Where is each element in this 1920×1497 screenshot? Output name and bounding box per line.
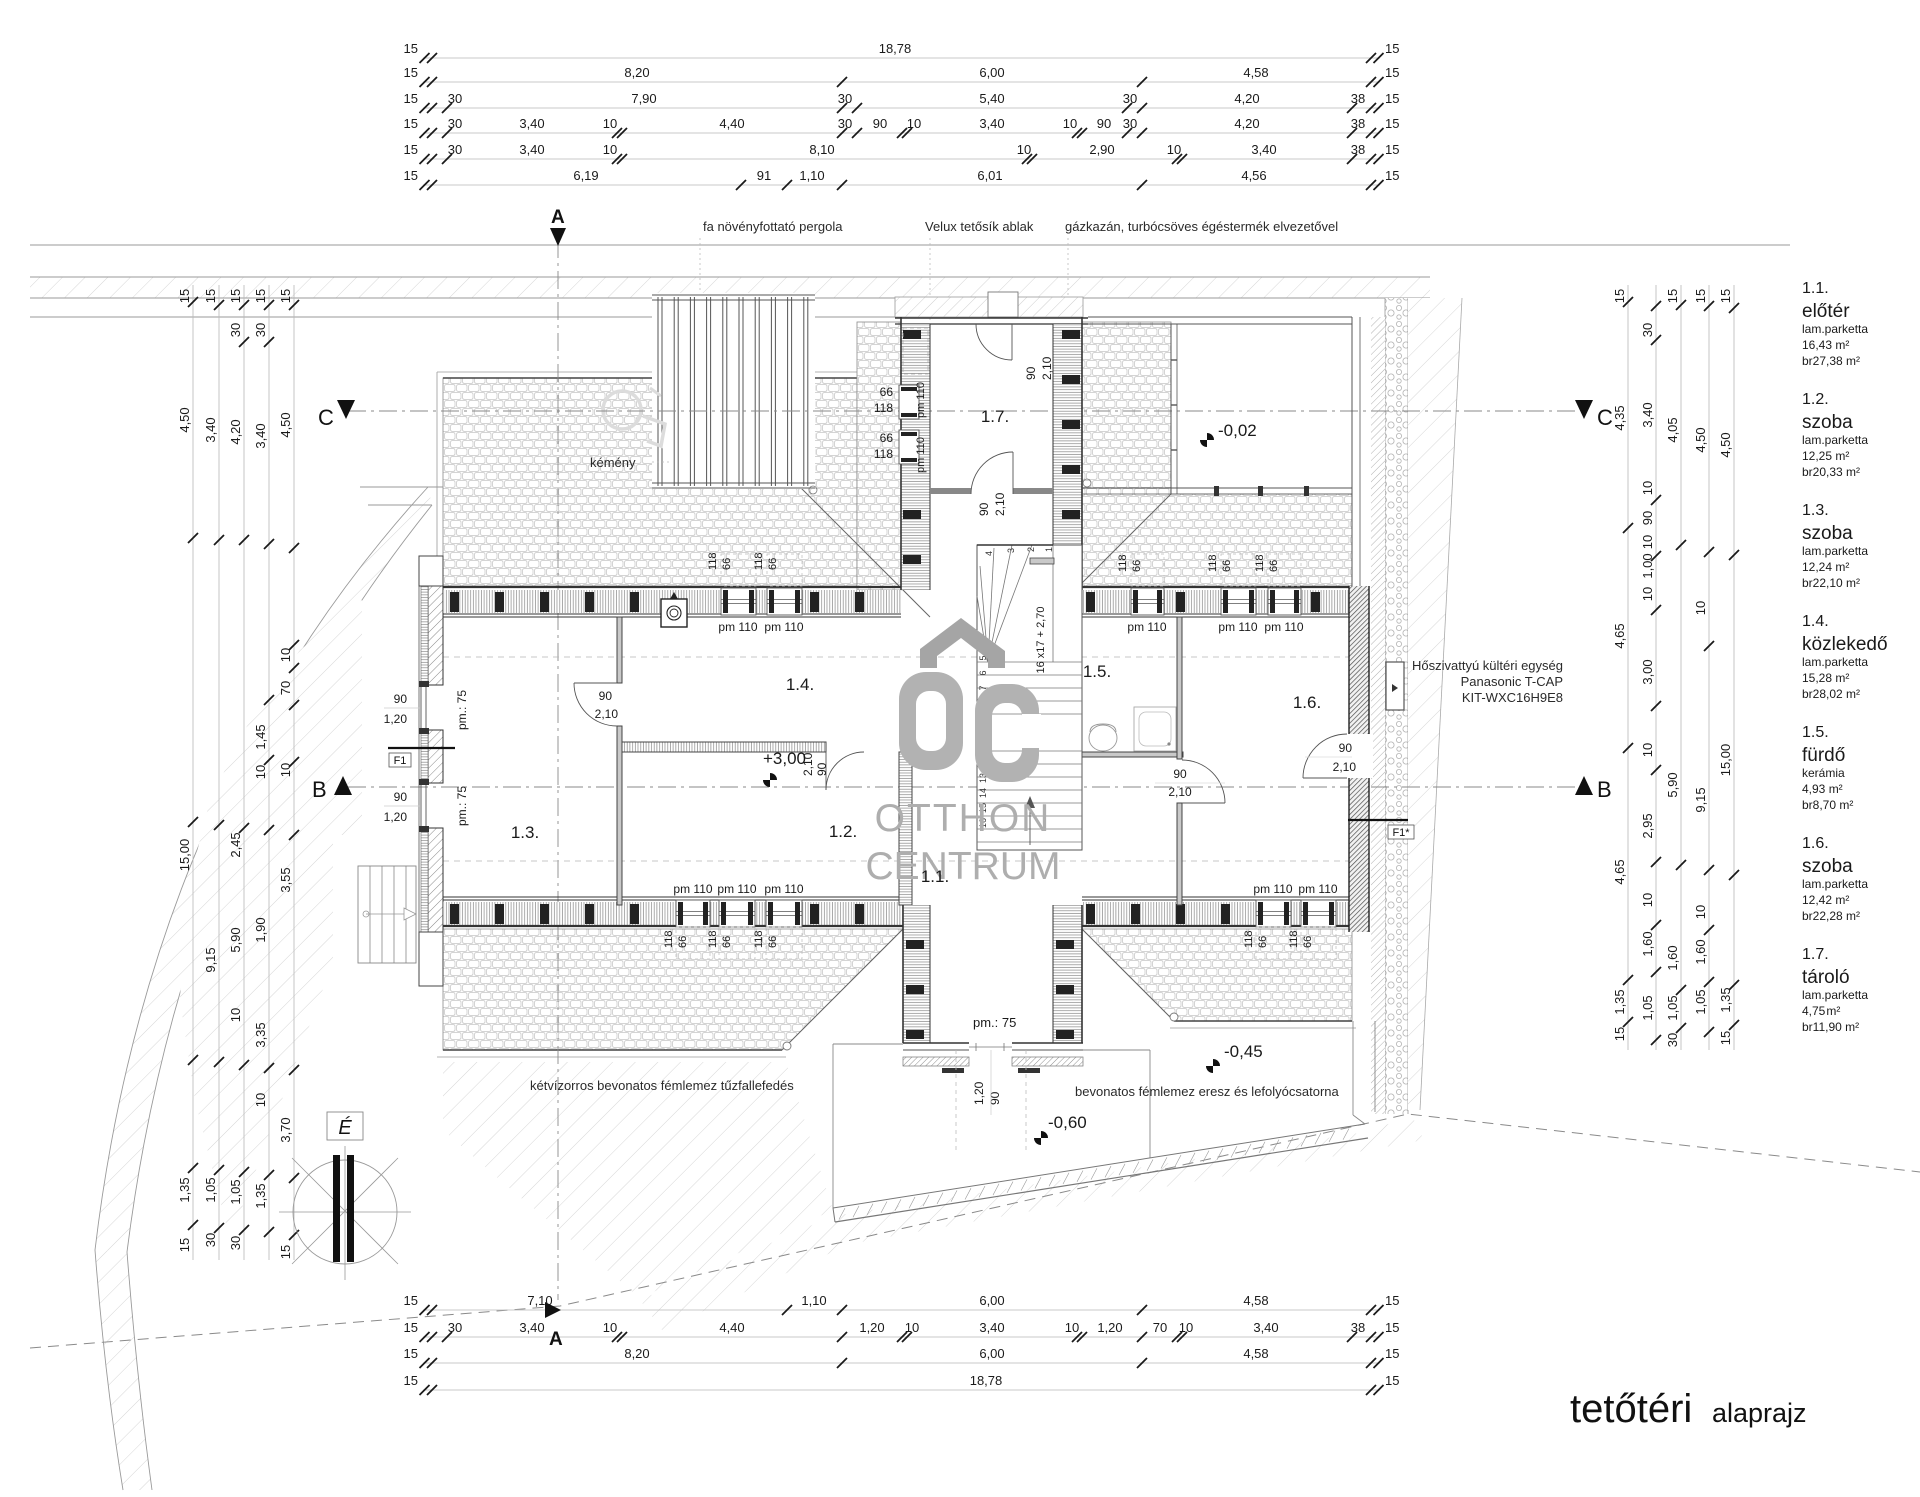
svg-text:4,58: 4,58 [1243,1346,1268,1361]
svg-text:30: 30 [838,91,852,106]
svg-text:30: 30 [203,1233,218,1247]
svg-text:B: B [312,777,327,802]
svg-text:kerámia: kerámia [1802,766,1845,780]
svg-text:66: 66 [1221,560,1233,572]
svg-text:66: 66 [767,936,779,948]
svg-text:lam.parketta: lam.parketta [1802,655,1868,669]
svg-text:C: C [1597,405,1613,430]
svg-text:90: 90 [1339,741,1353,755]
svg-text:30: 30 [228,323,243,337]
svg-text:É: É [338,1116,352,1139]
svg-text:alaprajz: alaprajz [1712,1398,1807,1428]
svg-text:118: 118 [1207,554,1219,572]
svg-text:6,00: 6,00 [979,65,1004,80]
svg-text:pm.: 75: pm.: 75 [455,690,469,730]
svg-text:Hőszivattyú kültéri egység: Hőszivattyú kültéri egység [1412,658,1563,673]
svg-text:1,35: 1,35 [1612,989,1627,1014]
svg-text:118: 118 [663,930,675,948]
svg-text:1.4.: 1.4. [1802,613,1829,630]
svg-text:1.5.: 1.5. [1083,662,1111,681]
svg-text:15: 15 [203,289,218,303]
svg-text:6: 6 [978,670,988,675]
svg-text:118: 118 [1288,930,1300,948]
svg-text:pm 110: pm 110 [764,882,803,896]
svg-text:15: 15 [1385,1320,1399,1335]
svg-text:18,78: 18,78 [970,1373,1003,1388]
svg-text:16,43 m²: 16,43 m² [1802,338,1849,352]
svg-text:kémény: kémény [590,455,636,470]
svg-text:5,40: 5,40 [979,91,1004,106]
svg-text:2,45: 2,45 [228,832,243,857]
svg-text:4: 4 [984,551,994,556]
svg-text:br27,38 m²: br27,38 m² [1802,354,1860,368]
svg-text:118: 118 [753,552,765,570]
svg-text:B: B [1597,777,1612,802]
svg-text:90: 90 [1097,116,1111,131]
svg-text:10: 10 [603,142,617,157]
svg-text:4,75 m²: 4,75 m² [1802,1004,1840,1018]
svg-text:közlekedő: közlekedő [1802,634,1888,655]
svg-text:8,20: 8,20 [624,65,649,80]
svg-text:pm 110: pm 110 [673,882,712,896]
svg-text:3,40: 3,40 [519,116,544,131]
svg-text:8,20: 8,20 [624,1346,649,1361]
svg-text:2: 2 [1026,547,1036,552]
svg-text:1.3.: 1.3. [1802,502,1829,519]
svg-text:10: 10 [603,116,617,131]
svg-text:15: 15 [1385,116,1399,131]
svg-text:15: 15 [1385,1293,1399,1308]
svg-text:pm 110: pm 110 [915,437,927,473]
svg-text:15: 15 [1385,1373,1399,1388]
svg-text:1,35: 1,35 [1718,987,1733,1012]
svg-text:30: 30 [253,323,268,337]
svg-text:15: 15 [177,289,192,303]
svg-text:3,55: 3,55 [278,867,293,892]
svg-text:előtér: előtér [1802,301,1850,322]
svg-text:30: 30 [838,116,852,131]
svg-text:1,20: 1,20 [859,1320,884,1335]
svg-text:br11,90 m²: br11,90 m² [1802,1020,1859,1034]
svg-text:1,05: 1,05 [228,1179,243,1204]
svg-text:30: 30 [448,142,462,157]
svg-text:1: 1 [1044,547,1054,552]
svg-text:15: 15 [1385,41,1399,56]
svg-text:1,60: 1,60 [1665,945,1680,970]
svg-text:1,20: 1,20 [1097,1320,1122,1335]
svg-text:90: 90 [1173,767,1187,781]
svg-text:15: 15 [278,1245,293,1259]
svg-text:15: 15 [1385,1346,1399,1361]
svg-text:15: 15 [1385,91,1399,106]
svg-text:szoba: szoba [1802,523,1853,544]
svg-text:1.7.: 1.7. [1802,946,1829,963]
svg-text:70: 70 [1153,1320,1167,1335]
svg-text:3,40: 3,40 [519,142,544,157]
svg-text:10: 10 [228,1008,243,1022]
svg-text:15: 15 [1693,289,1708,303]
svg-text:4,65: 4,65 [1612,859,1627,884]
svg-text:1.1.: 1.1. [921,867,949,886]
svg-text:15: 15 [404,1293,418,1308]
svg-text:15: 15 [1612,289,1627,303]
svg-text:3,40: 3,40 [1253,1320,1278,1335]
svg-text:10: 10 [1640,587,1655,601]
svg-text:66: 66 [1131,560,1143,572]
svg-text:Velux tetősík ablak: Velux tetősík ablak [925,219,1034,234]
svg-text:15: 15 [404,1373,418,1388]
svg-text:118: 118 [753,930,765,948]
svg-text:1,10: 1,10 [799,168,824,183]
svg-text:3,40: 3,40 [979,1320,1004,1335]
svg-text:4,56: 4,56 [1241,168,1266,183]
svg-text:38: 38 [1351,91,1365,106]
svg-text:90: 90 [873,116,887,131]
svg-text:118: 118 [1117,554,1129,572]
svg-text:10: 10 [1063,116,1077,131]
svg-text:10: 10 [278,648,293,662]
svg-text:Panasonic T-CAP: Panasonic T-CAP [1461,674,1563,689]
svg-text:10: 10 [253,765,268,779]
svg-text:15,00: 15,00 [177,839,192,872]
svg-text:1,05: 1,05 [1640,995,1655,1020]
svg-text:4,50: 4,50 [1718,432,1733,457]
svg-text:6,01: 6,01 [977,168,1002,183]
svg-text:7,90: 7,90 [631,91,656,106]
svg-text:15: 15 [404,142,418,157]
svg-text:KIT-WXC16H9E8: KIT-WXC16H9E8 [1462,690,1563,705]
svg-text:2,10: 2,10 [1333,760,1357,774]
svg-text:12,25 m²: 12,25 m² [1802,449,1849,463]
svg-text:30: 30 [228,1236,243,1250]
svg-text:szoba: szoba [1802,412,1853,433]
svg-text:-0,45: -0,45 [1224,1042,1263,1061]
svg-text:1.6.: 1.6. [1802,835,1829,852]
svg-text:66: 66 [767,558,779,570]
svg-text:1.5.: 1.5. [1802,724,1829,741]
svg-text:90: 90 [1640,511,1655,525]
svg-text:pm 110: pm 110 [915,382,927,418]
svg-text:66: 66 [721,936,733,948]
svg-text:10: 10 [1693,905,1708,919]
svg-text:118: 118 [707,552,719,570]
svg-text:66: 66 [880,431,894,445]
svg-text:1,45: 1,45 [253,724,268,749]
svg-text:3,40: 3,40 [979,116,1004,131]
svg-text:12,24 m²: 12,24 m² [1802,560,1849,574]
svg-text:118: 118 [707,930,719,948]
svg-text:4,50: 4,50 [1693,427,1708,452]
svg-text:pm 110: pm 110 [764,620,803,634]
svg-text:5,90: 5,90 [228,927,243,952]
svg-text:1.4.: 1.4. [786,675,814,694]
svg-text:1,20: 1,20 [384,810,408,824]
svg-text:30: 30 [1123,91,1137,106]
svg-text:1.3.: 1.3. [511,823,539,842]
svg-text:tároló: tároló [1802,967,1850,988]
svg-text:118: 118 [874,447,893,461]
svg-text:30: 30 [1640,323,1655,337]
svg-text:bevonatos fémlemez eresz és le: bevonatos fémlemez eresz és lefolyócsato… [1075,1084,1340,1099]
svg-text:8,10: 8,10 [809,142,834,157]
svg-text:30: 30 [448,116,462,131]
svg-text:10: 10 [1017,142,1031,157]
svg-text:3,35: 3,35 [253,1022,268,1047]
svg-text:15: 15 [1665,289,1680,303]
svg-text:lam.parketta: lam.parketta [1802,322,1868,336]
svg-text:10: 10 [1640,743,1655,757]
svg-text:4,35: 4,35 [1612,405,1627,430]
svg-text:90: 90 [394,692,408,706]
svg-text:pm 110: pm 110 [1298,882,1337,896]
svg-text:15: 15 [404,1320,418,1335]
svg-text:br20,33 m²: br20,33 m² [1802,465,1860,479]
svg-text:90: 90 [599,689,613,703]
svg-text:lam.parketta: lam.parketta [1802,988,1868,1002]
svg-text:15: 15 [404,116,418,131]
svg-text:pm 110: pm 110 [1264,620,1303,634]
svg-text:1,60: 1,60 [1640,931,1655,956]
svg-text:90: 90 [1024,366,1038,380]
svg-text:70: 70 [278,681,293,695]
svg-text:66: 66 [1257,936,1269,948]
svg-text:15,28 m²: 15,28 m² [1802,671,1849,685]
svg-text:pm 110: pm 110 [1253,882,1292,896]
svg-text:91: 91 [757,168,771,183]
svg-text:3,40: 3,40 [203,417,218,442]
svg-text:90: 90 [977,502,991,516]
svg-text:pm 110: pm 110 [1127,620,1166,634]
svg-text:15: 15 [404,41,418,56]
svg-text:10: 10 [905,1320,919,1335]
svg-text:+3,00: +3,00 [763,749,806,768]
svg-text:30: 30 [1665,1033,1680,1047]
svg-text:38: 38 [1351,1320,1365,1335]
svg-text:6,00: 6,00 [979,1346,1004,1361]
svg-text:118: 118 [1254,554,1266,572]
svg-text:kétvízorros bevonatos fémlemez: kétvízorros bevonatos fémlemez tűzfallef… [530,1078,794,1093]
svg-text:10: 10 [1640,481,1655,495]
svg-text:15: 15 [1718,289,1733,303]
svg-text:66: 66 [1268,560,1280,572]
svg-text:3,40: 3,40 [1640,402,1655,427]
svg-text:lam.parketta: lam.parketta [1802,544,1868,558]
svg-text:1,60: 1,60 [1693,939,1708,964]
svg-text:fa növényfottató pergola: fa növényfottató pergola [703,219,843,234]
svg-text:CENTRUM: CENTRUM [866,845,1061,888]
svg-text:lam.parketta: lam.parketta [1802,877,1868,891]
svg-text:6,19: 6,19 [573,168,598,183]
svg-text:OTTHON: OTTHON [875,797,1052,840]
svg-text:2,10: 2,10 [993,492,1007,516]
svg-text:10: 10 [1167,142,1181,157]
svg-text:10: 10 [1640,893,1655,907]
svg-text:15: 15 [1385,142,1399,157]
svg-text:15: 15 [1385,168,1399,183]
svg-text:pm 110: pm 110 [1218,620,1257,634]
svg-text:6,00: 6,00 [979,1293,1004,1308]
svg-text:3,00: 3,00 [1640,659,1655,684]
svg-text:4,05: 4,05 [1665,417,1680,442]
svg-text:15: 15 [1718,1031,1733,1045]
svg-text:1,35: 1,35 [177,1177,192,1202]
svg-text:15,00: 15,00 [1718,744,1733,777]
svg-text:br28,02 m²: br28,02 m² [1802,687,1860,701]
svg-text:90: 90 [988,1091,1002,1105]
svg-text:br22,10 m²: br22,10 m² [1802,576,1860,590]
svg-text:4,20: 4,20 [1234,91,1259,106]
svg-text:1,00: 1,00 [1640,553,1655,578]
svg-text:3,70: 3,70 [278,1117,293,1142]
svg-text:15: 15 [228,289,243,303]
svg-text:30: 30 [448,91,462,106]
svg-text:-0,60: -0,60 [1048,1113,1087,1132]
svg-text:4,50: 4,50 [177,407,192,432]
svg-text:4,20: 4,20 [228,419,243,444]
svg-text:10: 10 [907,116,921,131]
svg-text:1,05: 1,05 [1665,995,1680,1020]
svg-text:90: 90 [815,762,829,776]
svg-text:38: 38 [1351,116,1365,131]
svg-text:4,50: 4,50 [278,412,293,437]
svg-text:3: 3 [1006,548,1016,553]
svg-text:3,40: 3,40 [253,423,268,448]
svg-text:1,35: 1,35 [253,1183,268,1208]
svg-text:4,65: 4,65 [1612,623,1627,648]
svg-text:1,90: 1,90 [253,917,268,942]
svg-text:18,78: 18,78 [879,41,912,56]
svg-text:F1: F1 [394,755,407,767]
svg-text:3,40: 3,40 [1251,142,1276,157]
svg-text:15: 15 [404,1346,418,1361]
svg-text:1,10: 1,10 [801,1293,826,1308]
svg-text:pm 110: pm 110 [717,882,756,896]
svg-text:30: 30 [1123,116,1137,131]
svg-text:2,10: 2,10 [1168,785,1192,799]
svg-text:15: 15 [1612,1027,1627,1041]
svg-text:118: 118 [1243,930,1255,948]
svg-text:szoba: szoba [1802,856,1853,877]
svg-text:1.7.: 1.7. [981,407,1009,426]
svg-text:F1*: F1* [1392,827,1410,839]
svg-text:pm 110: pm 110 [718,620,757,634]
svg-text:4,40: 4,40 [719,1320,744,1335]
svg-text:1,05: 1,05 [1693,989,1708,1014]
svg-text:4,20: 4,20 [1234,116,1259,131]
svg-text:2,95: 2,95 [1640,813,1655,838]
svg-text:30: 30 [448,1320,462,1335]
svg-text:9,15: 9,15 [203,947,218,972]
svg-text:118: 118 [874,401,893,415]
svg-text:tetőtéri: tetőtéri [1570,1387,1692,1431]
svg-text:38: 38 [1351,142,1365,157]
svg-text:A: A [549,1329,563,1350]
svg-text:10: 10 [1179,1320,1193,1335]
svg-text:1.6.: 1.6. [1293,693,1321,712]
svg-text:pm.: 75: pm.: 75 [455,786,469,826]
svg-text:4,58: 4,58 [1243,65,1268,80]
svg-text:66: 66 [880,385,894,399]
svg-text:1,20: 1,20 [384,712,408,726]
svg-text:66: 66 [1302,936,1314,948]
svg-text:15: 15 [404,91,418,106]
svg-text:C: C [318,405,334,430]
svg-text:15: 15 [253,289,268,303]
svg-text:4,40: 4,40 [719,116,744,131]
svg-text:4,93 m²: 4,93 m² [1802,782,1843,796]
svg-text:1.2.: 1.2. [1802,391,1829,408]
svg-text:10: 10 [1065,1320,1079,1335]
svg-text:16 x17 + 2,70: 16 x17 + 2,70 [1035,607,1047,674]
svg-text:1.2.: 1.2. [829,822,857,841]
svg-text:15: 15 [1385,65,1399,80]
svg-text:15: 15 [404,65,418,80]
svg-text:gázkazán, turbócsöves égésterm: gázkazán, turbócsöves égéstermék elvezet… [1065,219,1338,234]
svg-text:15: 15 [404,168,418,183]
svg-text:br22,28 m²: br22,28 m² [1802,909,1860,923]
svg-text:pm.: 75: pm.: 75 [973,1015,1016,1030]
svg-text:10: 10 [1640,535,1655,549]
svg-text:2,10: 2,10 [595,707,619,721]
svg-text:3,40: 3,40 [519,1320,544,1335]
svg-text:A: A [551,207,565,228]
svg-text:66: 66 [677,936,689,948]
svg-text:10: 10 [603,1320,617,1335]
svg-text:fürdő: fürdő [1802,745,1845,766]
svg-text:15: 15 [177,1238,192,1252]
svg-text:1.1.: 1.1. [1802,280,1829,297]
svg-text:10: 10 [1693,601,1708,615]
svg-text:lam.parketta: lam.parketta [1802,433,1868,447]
svg-text:2,90: 2,90 [1089,142,1114,157]
svg-text:2,10: 2,10 [1040,356,1054,380]
svg-text:5,90: 5,90 [1665,772,1680,797]
svg-text:4,58: 4,58 [1243,1293,1268,1308]
svg-text:10: 10 [253,1093,268,1107]
svg-text:br8,70 m²: br8,70 m² [1802,798,1853,812]
svg-text:1,20: 1,20 [972,1081,986,1105]
svg-text:15: 15 [278,289,293,303]
svg-text:90: 90 [394,790,408,804]
svg-text:-0,02: -0,02 [1218,421,1257,440]
svg-text:9,15: 9,15 [1693,787,1708,812]
svg-text:1,05: 1,05 [203,1177,218,1202]
svg-text:12,42 m²: 12,42 m² [1802,893,1849,907]
svg-text:66: 66 [721,558,733,570]
